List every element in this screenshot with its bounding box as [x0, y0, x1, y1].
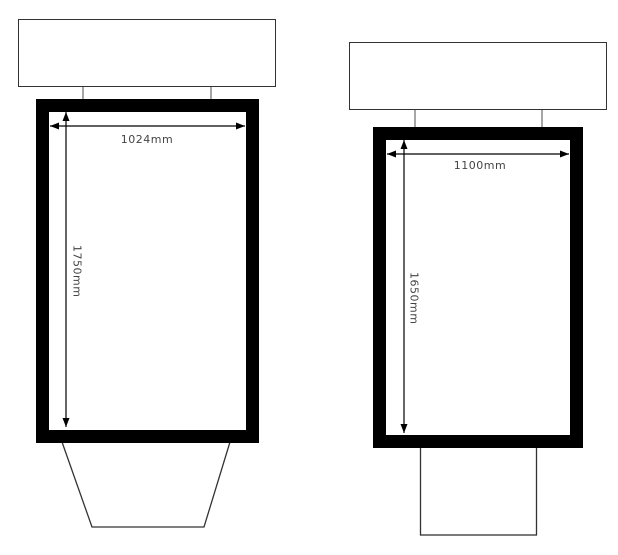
left-unit-header-panel: [18, 19, 276, 87]
technical-drawing-canvas: 1024mm 1750mm 1100mm 1650mm: [0, 0, 618, 555]
right-unit-height-label: 1650mm: [406, 246, 422, 351]
left-unit-height-label: 1750mm: [69, 219, 85, 324]
right-unit-rectangular-base: [421, 446, 537, 535]
left-unit-trapezoid-base: [62, 442, 230, 527]
right-unit-header-panel: [349, 42, 607, 110]
right-unit-display-frame: [373, 127, 583, 448]
right-unit-width-label: 1100mm: [430, 159, 530, 172]
left-unit-width-label: 1024mm: [97, 133, 197, 146]
